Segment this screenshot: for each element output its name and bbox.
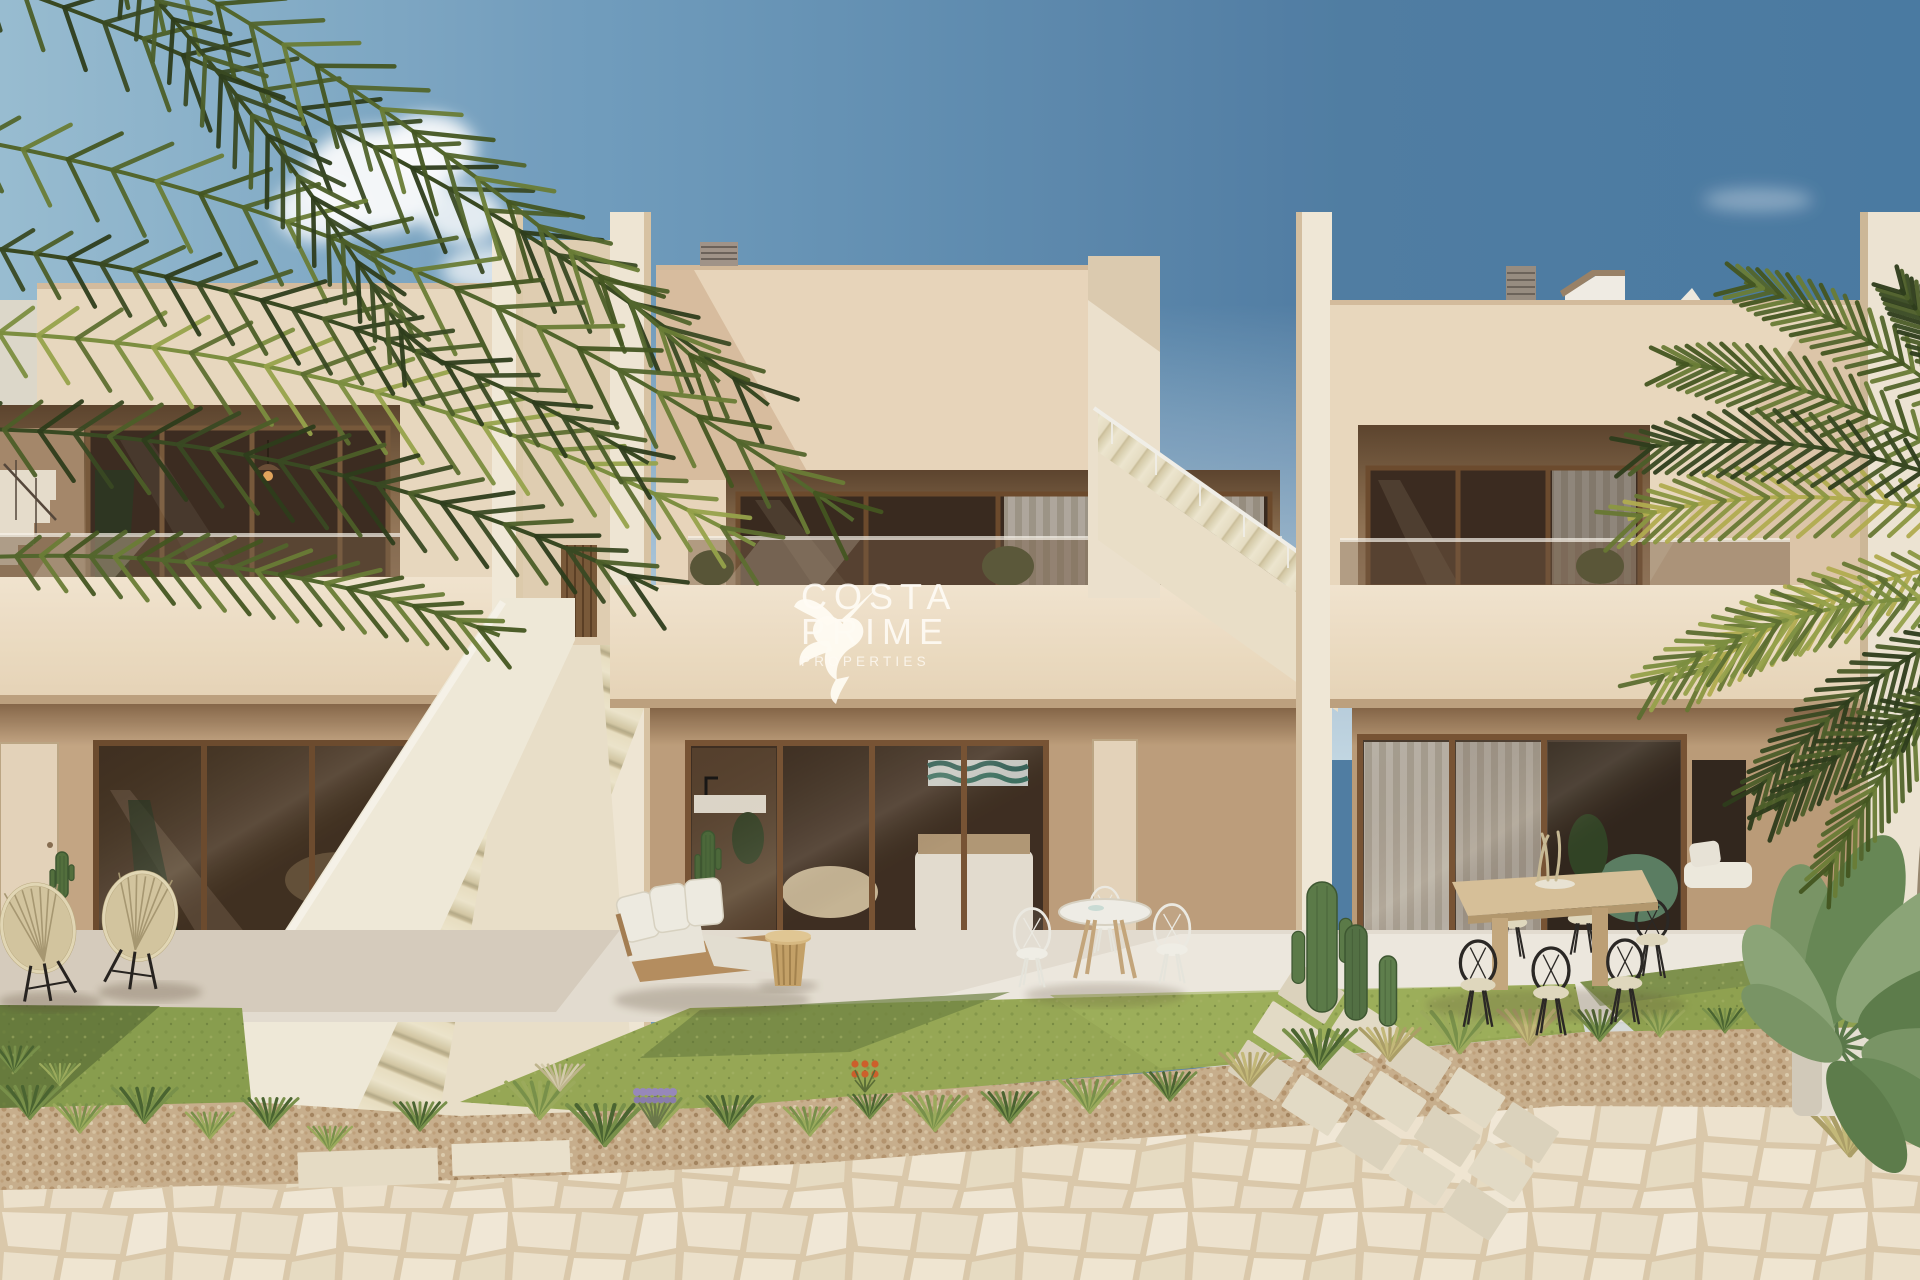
property-render: COSTA PRIME PROPERTIES [0, 0, 1920, 1280]
render-scene [0, 0, 1920, 1280]
vignette [0, 0, 1920, 1280]
